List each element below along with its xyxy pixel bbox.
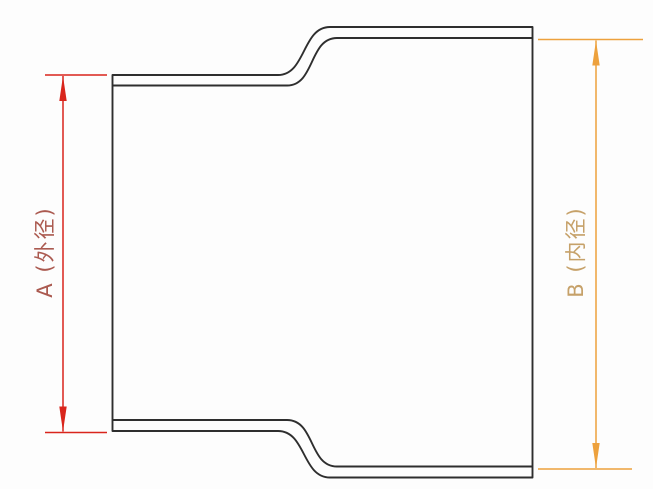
dimension-a-arrow-up-icon [59,76,66,101]
dimension-a: A (外径) [33,75,107,433]
pipe-fitting-drawing: A (外径) B (内径) [0,0,653,489]
dimension-b-arrow-up-icon [592,41,599,66]
pipe-inner-wall-bottom [113,420,533,467]
drawing-canvas: A (外径) B (内径) [0,0,653,489]
dimension-a-label: A (外径) [33,206,57,297]
pipe-outer-contour [113,27,533,478]
dimension-b: B (内径) [538,40,643,470]
pipe-inner-wall-top [113,38,533,86]
dimension-b-arrow-down-icon [592,443,599,468]
pipe-profile [113,27,533,478]
dimension-b-label: B (内径) [564,206,588,297]
dimension-a-arrow-down-icon [59,407,66,432]
